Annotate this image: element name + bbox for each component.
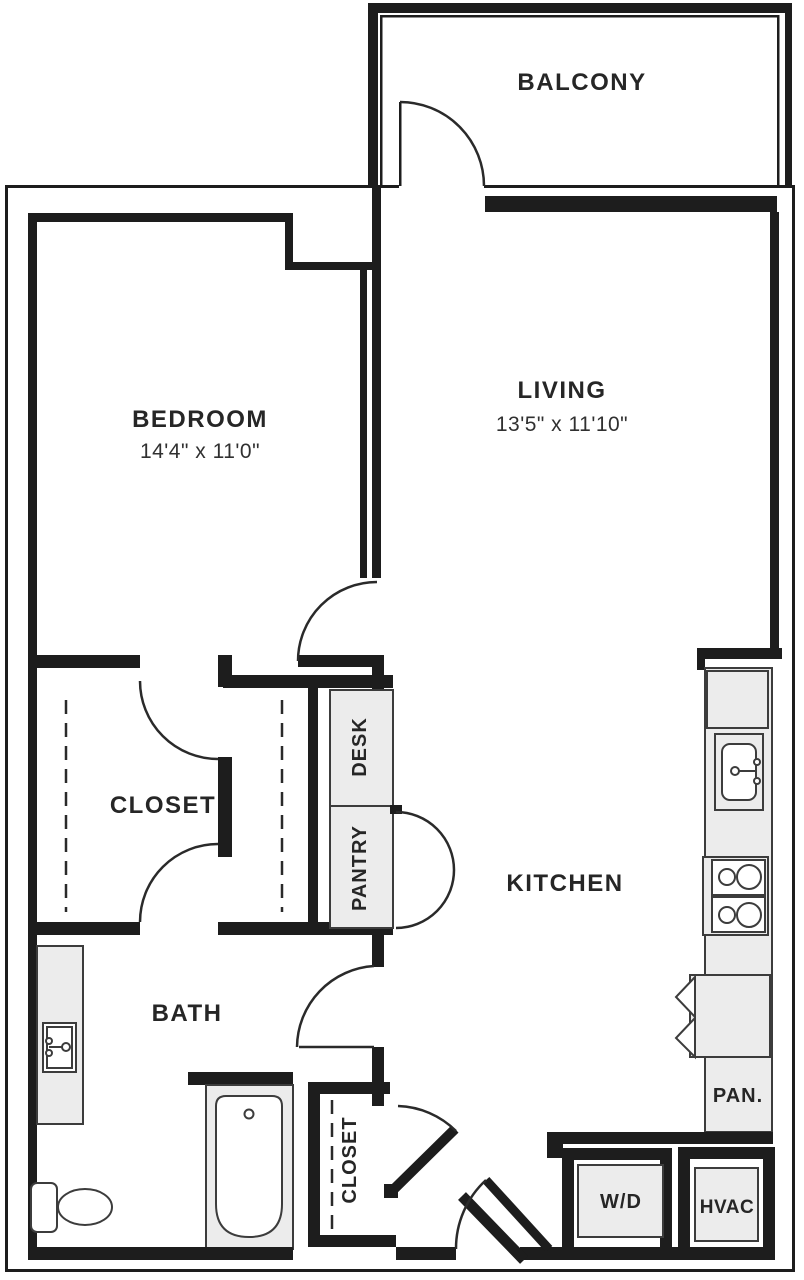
bathroom: BATH [28,930,384,1260]
living-label: LIVING [517,377,606,404]
entry-closet-door [392,1106,456,1191]
desk-pantry-niche: DESK PANTRY [330,655,454,928]
kitchen: KITCHEN PAN. [506,668,772,1132]
faucet-icon [731,767,739,775]
balcony-door [399,102,484,186]
entry-closet-label: CLOSET [339,1116,361,1203]
closet-door-lower-arc [140,844,218,922]
closet-label: CLOSET [110,792,216,819]
washer-dryer-label: W/D [600,1191,642,1213]
refrigerator [707,671,768,728]
living-dimensions: 13'5" x 11'10" [496,413,628,436]
kitchen-sink [715,734,763,810]
hvac-label: HVAC [700,1197,754,1218]
dishwasher [676,975,770,1057]
pan-label: PAN. [713,1085,763,1107]
bedroom-door [298,582,377,667]
pantry-label: PANTRY [349,825,371,911]
balcony-label: BALCONY [517,69,646,96]
bath-label: BATH [152,1000,223,1027]
washer-dryer-closet: W/D [562,1148,672,1247]
bathtub [188,1072,293,1249]
bath-door [297,966,374,1047]
closet-door-upper-arc [140,681,218,759]
hvac-closet: HVAC [678,1147,775,1247]
exterior-walls [5,185,795,1272]
pantry-double-doors [396,812,454,928]
bedroom-label: BEDROOM [132,406,268,433]
floor-plan: BALCONY BEDROOM 14'4" x 11'0" LIVING 13'… [0,0,804,1280]
toilet [31,1183,112,1232]
entry-closet: CLOSET [308,1082,456,1247]
stove [703,857,768,935]
kitchen-label: KITCHEN [506,870,623,897]
living-room: LIVING 13'5" x 11'10" [485,196,782,670]
balcony: BALCONY [368,3,792,186]
desk-label: DESK [349,717,371,777]
bedroom-dimensions: 14'4" x 11'0" [140,440,260,463]
floor-plan-svg: BALCONY BEDROOM 14'4" x 11'0" LIVING 13'… [0,0,804,1280]
bath-vanity [37,946,83,1124]
utility-closets: W/D HVAC [547,1132,775,1247]
faucet-icon [46,1038,52,1044]
